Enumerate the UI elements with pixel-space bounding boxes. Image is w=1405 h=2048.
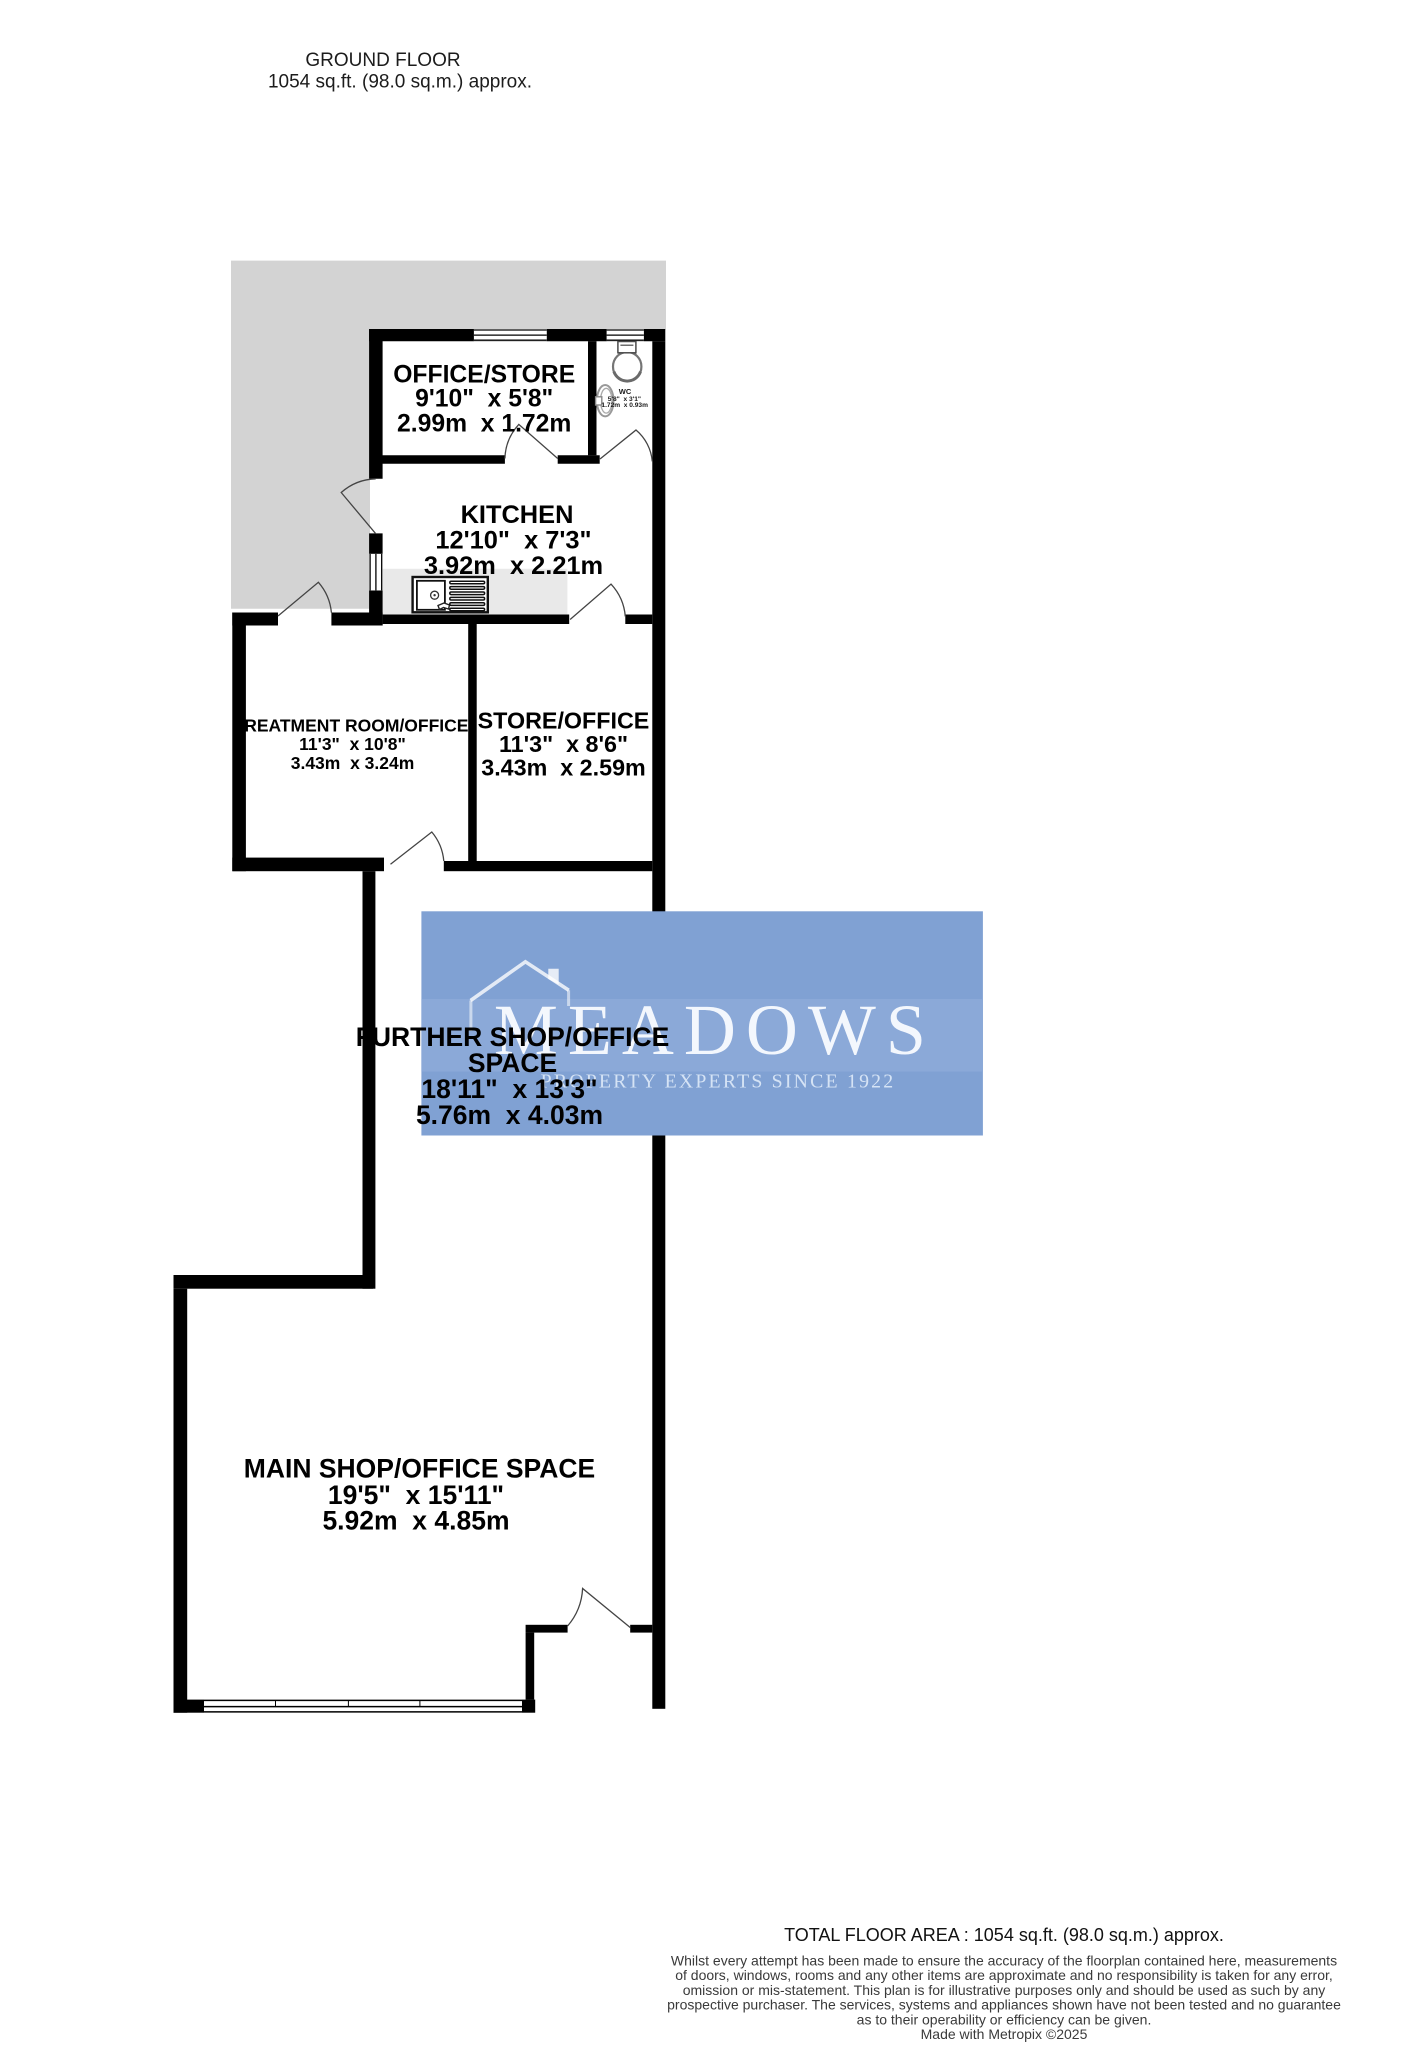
- svg-text:11'3" x 8'6": 11'3" x 8'6": [499, 731, 628, 757]
- svg-text:omission or mis-statement. Thi: omission or mis-statement. This plan is …: [683, 1982, 1326, 1998]
- svg-text:3.43m x 2.59m: 3.43m x 2.59m: [481, 755, 646, 781]
- svg-text:3.92m x 2.21m: 3.92m x 2.21m: [424, 552, 603, 580]
- svg-text:1.72m x 0.93m: 1.72m x 0.93m: [601, 402, 648, 409]
- svg-text:11'3" x 10'8": 11'3" x 10'8": [299, 734, 406, 754]
- svg-text:Made with Metropix ©2025: Made with Metropix ©2025: [921, 2026, 1088, 2042]
- svg-text:12'10" x 7'3": 12'10" x 7'3": [435, 526, 591, 554]
- svg-text:KITCHEN: KITCHEN: [461, 501, 574, 529]
- svg-text:5.92m x 4.85m: 5.92m x 4.85m: [322, 1506, 509, 1536]
- svg-text:9'10" x 5'8": 9'10" x 5'8": [415, 386, 553, 413]
- svg-text:of doors, windows, rooms and a: of doors, windows, rooms and any other i…: [675, 1967, 1333, 1983]
- svg-text:as to their operability or eff: as to their operability or efficiency ca…: [857, 2011, 1152, 2027]
- svg-text:2.99m x 1.72m: 2.99m x 1.72m: [397, 411, 571, 438]
- svg-text:TOTAL FLOOR AREA : 1054 sq.ft.: TOTAL FLOOR AREA : 1054 sq.ft. (98.0 sq.…: [784, 1925, 1224, 1945]
- svg-text:GROUND FLOOR: GROUND FLOOR: [305, 50, 460, 71]
- svg-text:TREATMENT ROOM/OFFICE: TREATMENT ROOM/OFFICE: [234, 715, 469, 735]
- svg-text:WC: WC: [619, 387, 632, 396]
- svg-text:Whilst every attempt has been: Whilst every attempt has been made to en…: [671, 1953, 1337, 1969]
- svg-text:prospective purchaser. The ser: prospective purchaser. The services, sys…: [667, 1997, 1341, 2013]
- svg-text:3.43m x 3.24m: 3.43m x 3.24m: [291, 753, 415, 773]
- svg-text:STORE/OFFICE: STORE/OFFICE: [478, 708, 650, 734]
- svg-text:1054 sq.ft. (98.0 sq.m.) appro: 1054 sq.ft. (98.0 sq.m.) approx.: [268, 72, 532, 93]
- svg-text:5.76m x 4.03m: 5.76m x 4.03m: [416, 1100, 603, 1130]
- svg-text:OFFICE/STORE: OFFICE/STORE: [393, 361, 575, 388]
